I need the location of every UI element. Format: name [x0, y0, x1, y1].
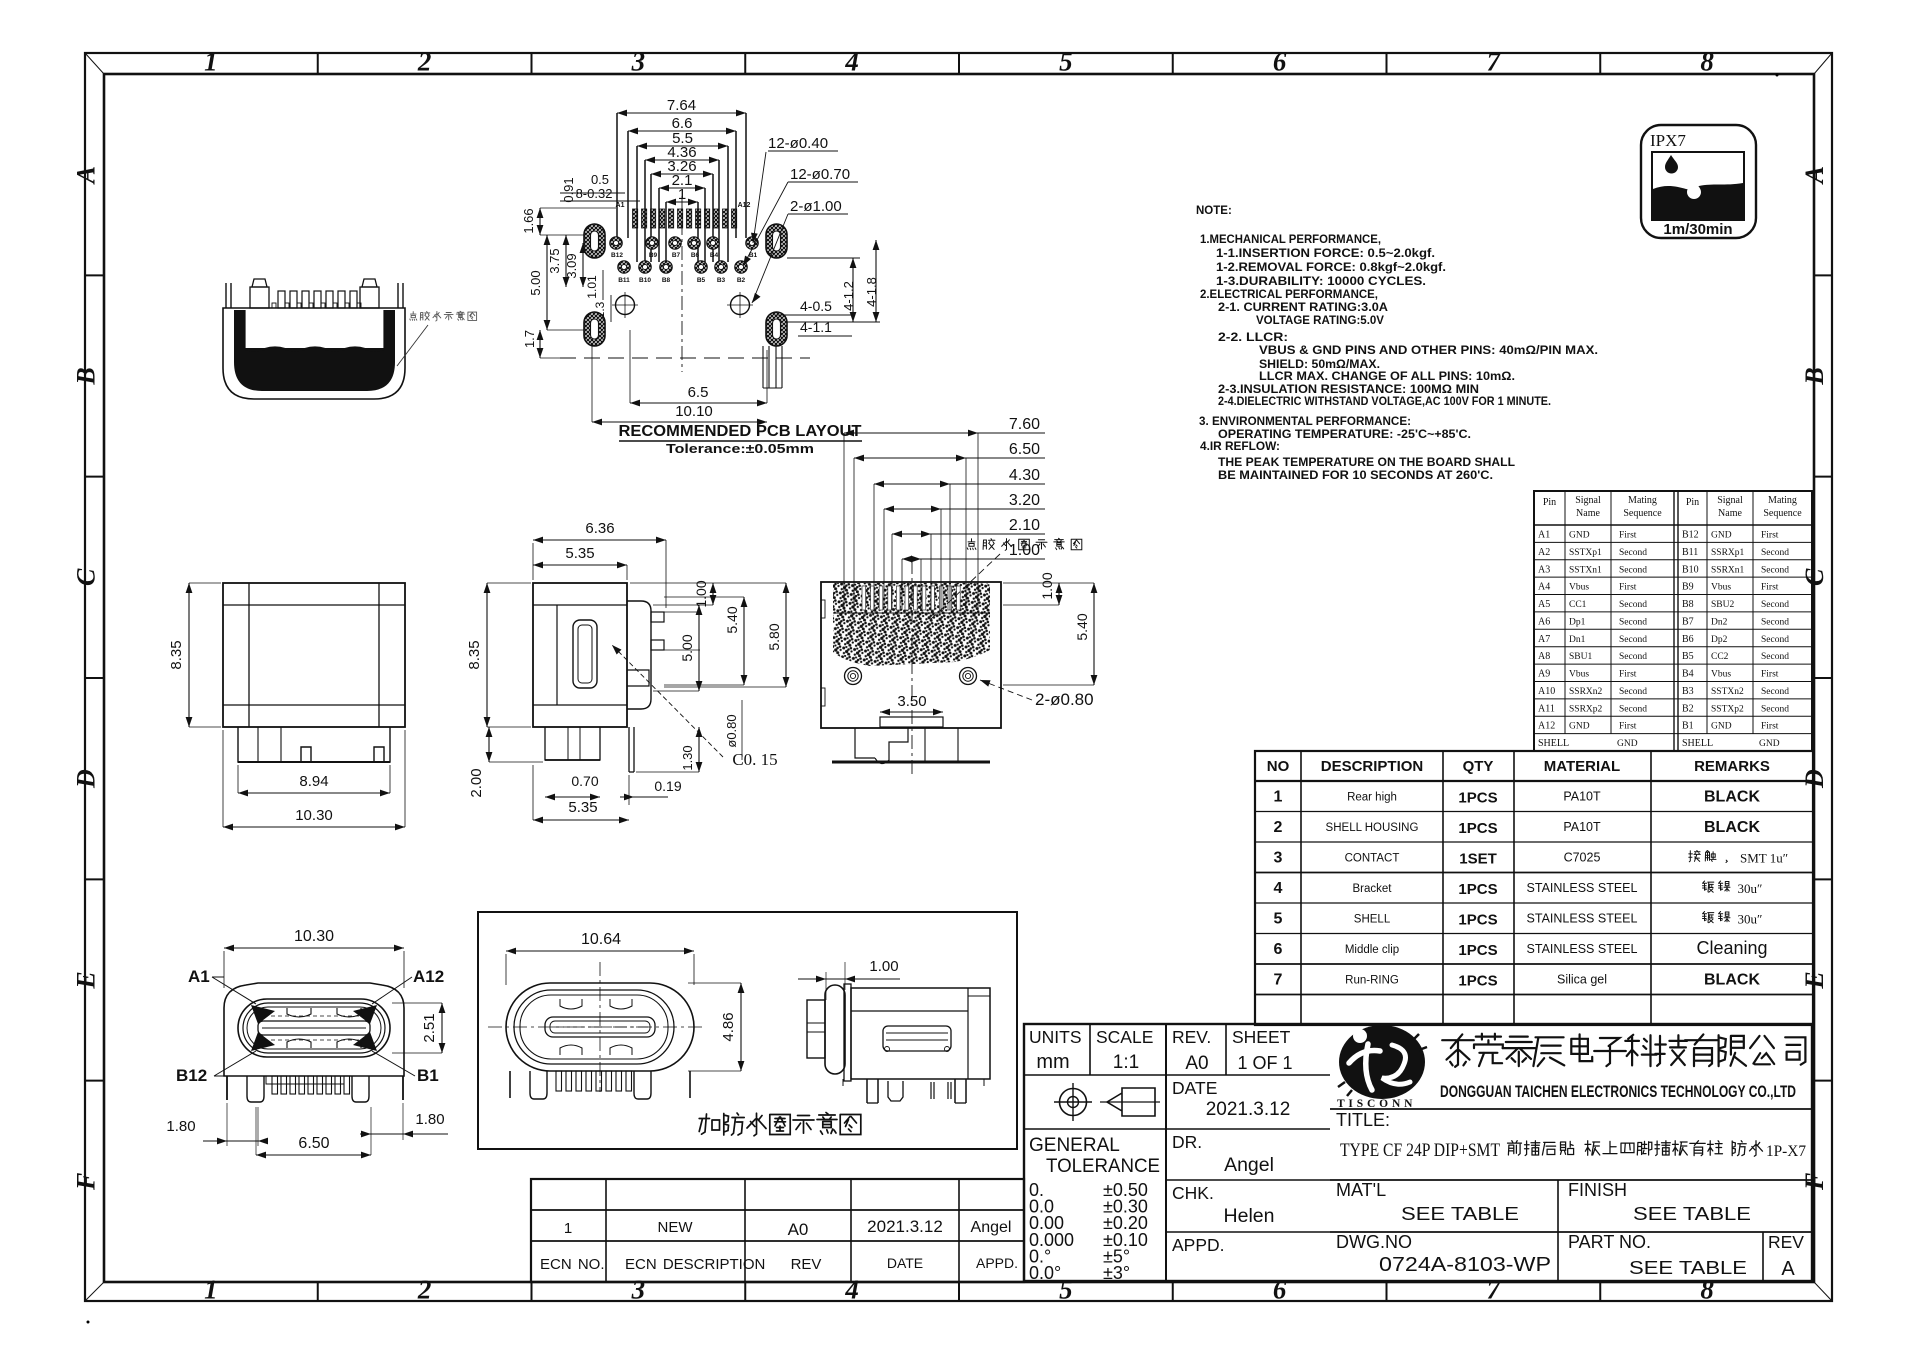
svg-text:2.51: 2.51	[421, 1013, 438, 1042]
svg-text:SHIELD: 50mΩ/MAX.: SHIELD: 50mΩ/MAX.	[1259, 359, 1380, 371]
svg-text:5: 5	[1274, 910, 1283, 927]
svg-text:OPERATING TEMPERATURE: -25'C~+: OPERATING TEMPERATURE: -25'C~+85'C.	[1218, 429, 1471, 441]
svg-text:DATE: DATE	[887, 1255, 923, 1271]
svg-text:B11: B11	[1682, 547, 1698, 558]
svg-text:5.40: 5.40	[1074, 613, 1090, 640]
svg-text:A8: A8	[1538, 651, 1550, 662]
svg-text:1 OF 1: 1 OF 1	[1237, 1053, 1292, 1073]
svg-text:2: 2	[1274, 819, 1283, 836]
svg-text:8.35: 8.35	[466, 640, 483, 669]
svg-text:SCALE: SCALE	[1096, 1027, 1153, 1047]
svg-text:7: 7	[1487, 47, 1502, 77]
svg-text:5.00: 5.00	[679, 634, 695, 661]
svg-text:REMARKS: REMARKS	[1694, 758, 1770, 775]
svg-text:STAINLESS STEEL: STAINLESS STEEL	[1527, 911, 1638, 925]
svg-text:6.50: 6.50	[1009, 441, 1040, 458]
svg-text:1.00: 1.00	[1009, 542, 1040, 559]
svg-text:1SET: 1SET	[1459, 850, 1497, 867]
svg-text:1.80: 1.80	[415, 1111, 444, 1128]
svg-text:B7: B7	[1682, 616, 1694, 627]
svg-text:Second: Second	[1619, 635, 1647, 645]
svg-text:NEW: NEW	[658, 1219, 694, 1236]
svg-text:0.70: 0.70	[571, 773, 598, 789]
svg-text:First: First	[1619, 670, 1637, 680]
svg-text:GENERAL: GENERAL	[1029, 1135, 1120, 1156]
svg-text:CONTACT: CONTACT	[1345, 852, 1400, 864]
svg-text:C7025: C7025	[1564, 850, 1601, 864]
svg-text:Rear high: Rear high	[1347, 791, 1397, 803]
svg-text:6.5: 6.5	[688, 384, 709, 401]
svg-text:6.36: 6.36	[585, 520, 614, 537]
svg-text:BLACK: BLACK	[1704, 788, 1760, 805]
svg-text:1PCS: 1PCS	[1458, 972, 1497, 989]
svg-text:5.35: 5.35	[565, 545, 594, 562]
svg-text:Second: Second	[1761, 687, 1789, 697]
svg-text:MAT'L: MAT'L	[1336, 1180, 1386, 1200]
svg-text:Vbus: Vbus	[1569, 583, 1589, 593]
svg-text:A5: A5	[1538, 599, 1550, 610]
svg-text:VOLTAGE RATING:5.0V: VOLTAGE RATING:5.0V	[1256, 315, 1384, 327]
svg-text:B9: B9	[649, 252, 658, 259]
svg-text:0.0°: 0.0°	[1029, 1263, 1061, 1283]
svg-text:TITLE:: TITLE:	[1336, 1110, 1390, 1130]
svg-text:B6: B6	[691, 252, 700, 259]
svg-text:Sequence: Sequence	[1623, 508, 1662, 519]
svg-text:2-3.INSULATION RESISTANCE: 100: 2-3.INSULATION RESISTANCE: 100MΩ MIN	[1218, 384, 1479, 396]
svg-text:6: 6	[1273, 47, 1287, 77]
svg-text:5.35: 5.35	[568, 799, 597, 816]
svg-text:Angel: Angel	[971, 1219, 1012, 1236]
svg-text:2: 2	[417, 47, 432, 77]
svg-text:4-1.8: 4-1.8	[864, 277, 879, 307]
svg-text:Name: Name	[1718, 508, 1742, 519]
svg-text:First: First	[1761, 531, 1779, 541]
svg-text:Dp2: Dp2	[1711, 635, 1728, 645]
svg-text:GND: GND	[1569, 531, 1590, 541]
svg-text:SHELL HOUSING: SHELL HOUSING	[1326, 822, 1419, 834]
svg-text:Angel: Angel	[1224, 1154, 1274, 1176]
svg-text:4: 4	[844, 47, 859, 77]
svg-text:BLACK: BLACK	[1704, 971, 1760, 988]
svg-text:A: A	[1781, 1258, 1795, 1280]
svg-text:First: First	[1761, 722, 1779, 732]
svg-text:10.10: 10.10	[675, 403, 713, 420]
svg-text:1: 1	[564, 1220, 572, 1237]
svg-text:1-2.REMOVAL FORCE: 0.8kgf~2.0k: 1-2.REMOVAL FORCE: 0.8kgf~2.0kgf.	[1216, 262, 1446, 274]
svg-text:5.40: 5.40	[724, 606, 740, 633]
svg-text:A4: A4	[1538, 582, 1550, 593]
svg-text:Second: Second	[1619, 617, 1647, 627]
svg-text:B7: B7	[672, 252, 681, 259]
svg-text:2-4.DIELECTRIC WITHSTAND VOLTA: 2-4.DIELECTRIC WITHSTAND VOLTAGE,AC 100V…	[1218, 396, 1551, 408]
svg-text:GND: GND	[1569, 722, 1590, 732]
svg-text:mm: mm	[1036, 1051, 1069, 1073]
svg-text:1PCS: 1PCS	[1458, 911, 1497, 928]
svg-text:Dn2: Dn2	[1711, 617, 1728, 627]
svg-text:2021.3.12: 2021.3.12	[867, 1217, 943, 1236]
svg-text:2.00: 2.00	[468, 768, 485, 797]
svg-text:REV.: REV.	[1172, 1027, 1211, 1047]
svg-text:7: 7	[1274, 971, 1283, 988]
svg-text:NOTE:: NOTE:	[1196, 205, 1232, 217]
svg-text:Tolerance:±0.05mm: Tolerance:±0.05mm	[666, 442, 814, 456]
svg-text:A1: A1	[1538, 530, 1550, 541]
svg-text:Second: Second	[1619, 565, 1647, 575]
svg-text:6: 6	[1273, 1275, 1287, 1305]
svg-text:1.00: 1.00	[1039, 572, 1055, 599]
svg-text:SSTXp1: SSTXp1	[1569, 548, 1602, 558]
svg-text:SSRXp1: SSRXp1	[1711, 548, 1745, 558]
svg-text:REV: REV	[791, 1256, 822, 1273]
svg-text:1PCS: 1PCS	[1458, 881, 1497, 898]
svg-text:A12: A12	[1538, 721, 1555, 732]
svg-text:A: A	[1800, 166, 1829, 185]
svg-text:12-ø0.40: 12-ø0.40	[768, 135, 828, 152]
svg-text:4: 4	[1274, 880, 1283, 897]
svg-text:Pin: Pin	[1686, 497, 1699, 508]
svg-text:DATE: DATE	[1172, 1078, 1217, 1098]
svg-text:CHK.: CHK.	[1172, 1183, 1214, 1203]
svg-text:Second: Second	[1761, 600, 1789, 610]
svg-text:B: B	[1800, 367, 1829, 385]
svg-text:SEE TABLE: SEE TABLE	[1401, 1203, 1519, 1224]
svg-text:CC1: CC1	[1569, 600, 1587, 610]
svg-text:Pin: Pin	[1543, 497, 1556, 508]
svg-text:2.10: 2.10	[1009, 517, 1040, 534]
svg-text:B11: B11	[618, 277, 630, 284]
svg-text:0.19: 0.19	[654, 778, 681, 794]
svg-text:SSTXn2: SSTXn2	[1711, 687, 1744, 697]
svg-text:A6: A6	[1538, 616, 1550, 627]
svg-text:A: A	[72, 166, 101, 185]
svg-text:SSRXn2: SSRXn2	[1569, 687, 1603, 697]
svg-text:1P-X7: 1P-X7	[1766, 1143, 1806, 1160]
svg-text:8: 8	[1700, 1275, 1714, 1305]
svg-text:Sequence: Sequence	[1763, 508, 1802, 519]
svg-text:Second: Second	[1619, 704, 1647, 714]
svg-text:NO: NO	[1267, 758, 1290, 775]
svg-text:THE PEAK TEMPERATURE ON THE BO: THE PEAK TEMPERATURE ON THE BOARD SHALL	[1218, 457, 1515, 469]
svg-text:A12: A12	[738, 202, 751, 209]
svg-text:±3°: ±3°	[1103, 1263, 1130, 1283]
svg-text:SBU2: SBU2	[1711, 600, 1734, 610]
svg-text:Helen: Helen	[1224, 1205, 1275, 1227]
svg-text:RECOMMENDED PCB LAYOUT: RECOMMENDED PCB LAYOUT	[619, 423, 863, 440]
svg-text:A12: A12	[413, 967, 444, 986]
svg-text:A0: A0	[1185, 1053, 1208, 1074]
svg-text:B10: B10	[639, 277, 651, 284]
svg-text:B12: B12	[176, 1066, 207, 1085]
svg-text:PA10T: PA10T	[1563, 789, 1601, 803]
svg-text:BE MAINTAINED FOR 10 SECONDS A: BE MAINTAINED FOR 10 SECONDS AT 260'C.	[1218, 470, 1493, 482]
svg-text:B12: B12	[1682, 530, 1699, 541]
svg-text:SSRXn1: SSRXn1	[1711, 565, 1745, 575]
svg-text:8-0.32: 8-0.32	[576, 186, 613, 201]
svg-text:REV: REV	[1768, 1232, 1804, 1252]
svg-text:Second: Second	[1761, 704, 1789, 714]
svg-text:4-1.2: 4-1.2	[841, 281, 856, 311]
svg-text:1m/30min: 1m/30min	[1663, 221, 1732, 238]
svg-text:8.35: 8.35	[168, 640, 185, 669]
svg-text:Second: Second	[1619, 548, 1647, 558]
svg-text:Mating: Mating	[1768, 495, 1797, 506]
svg-text:5.00: 5.00	[528, 270, 543, 295]
svg-text:3.09: 3.09	[564, 253, 579, 278]
svg-text:IPX7: IPX7	[1650, 131, 1686, 150]
svg-text:GND: GND	[1711, 531, 1732, 541]
svg-text:Second: Second	[1761, 635, 1789, 645]
svg-text:PA10T: PA10T	[1563, 820, 1601, 834]
svg-text:T I S C O N N: T I S C O N N	[1337, 1098, 1413, 1110]
svg-text:FINISH: FINISH	[1568, 1180, 1627, 1200]
svg-text:4-0.5: 4-0.5	[800, 298, 832, 314]
svg-text:Vbus: Vbus	[1569, 670, 1589, 680]
svg-text:1: 1	[204, 1275, 218, 1305]
svg-text:B: B	[72, 367, 101, 385]
svg-text:1.MECHANICAL PERFORMANCE,: 1.MECHANICAL PERFORMANCE,	[1200, 234, 1381, 246]
svg-text:Mating: Mating	[1628, 495, 1657, 506]
svg-text:2-ø1.00: 2-ø1.00	[790, 198, 842, 215]
svg-text:8.94: 8.94	[299, 773, 328, 790]
svg-text:10.64: 10.64	[581, 931, 621, 948]
svg-text:DONGGUAN TAICHEN ELECTRONICS T: DONGGUAN TAICHEN ELECTRONICS TECHNOLOGY …	[1440, 1083, 1796, 1101]
svg-text:1.30: 1.30	[680, 745, 695, 770]
svg-text:1:1: 1:1	[1113, 1052, 1139, 1073]
svg-text:0724A-8103-WP: 0724A-8103-WP	[1379, 1254, 1551, 1276]
svg-text:2: 2	[417, 1275, 432, 1305]
svg-text:SBU1: SBU1	[1569, 652, 1592, 662]
svg-text:5: 5	[1059, 47, 1073, 77]
svg-text:GND: GND	[1711, 722, 1732, 732]
svg-text:STAINLESS STEEL: STAINLESS STEEL	[1527, 881, 1638, 895]
svg-text:B3: B3	[1682, 686, 1694, 697]
svg-text:1-3.DURABILITY: 10000 CYCLES.: 1-3.DURABILITY: 10000 CYCLES.	[1216, 276, 1426, 288]
svg-text:1.7: 1.7	[522, 330, 537, 348]
svg-text:Second: Second	[1761, 652, 1789, 662]
svg-text:B3: B3	[717, 277, 726, 284]
svg-text:A10: A10	[1538, 686, 1555, 697]
svg-text:SEE TABLE: SEE TABLE	[1633, 1203, 1751, 1224]
svg-text:STAINLESS STEEL: STAINLESS STEEL	[1527, 942, 1638, 956]
svg-text:First: First	[1761, 583, 1779, 593]
svg-text:Cleaning: Cleaning	[1696, 938, 1767, 958]
svg-text:A1: A1	[188, 967, 210, 986]
svg-text:1: 1	[1274, 788, 1283, 805]
svg-text:PART NO.: PART NO.	[1568, 1232, 1651, 1252]
svg-text:A0: A0	[788, 1220, 809, 1239]
svg-text:SHEET: SHEET	[1232, 1027, 1291, 1047]
svg-text:LLCR MAX. CHANGE OF ALL PINS:: LLCR MAX. CHANGE OF ALL PINS: 10mΩ.	[1259, 371, 1515, 383]
svg-text:30u″: 30u″	[1738, 911, 1763, 926]
svg-text:First: First	[1619, 531, 1637, 541]
svg-text:Vbus: Vbus	[1711, 670, 1731, 680]
svg-text:A2: A2	[1538, 547, 1550, 558]
svg-text:APPD.: APPD.	[1172, 1235, 1225, 1255]
svg-text:GND: GND	[1617, 739, 1638, 749]
svg-text:B8: B8	[1682, 599, 1694, 610]
svg-text:GND: GND	[1759, 739, 1780, 749]
svg-text:1PCS: 1PCS	[1458, 942, 1497, 959]
svg-text:Second: Second	[1619, 652, 1647, 662]
svg-text:2-2. LLCR:: 2-2. LLCR:	[1218, 332, 1288, 344]
svg-text:DESCRIPTION: DESCRIPTION	[1321, 758, 1424, 775]
svg-text:B1: B1	[1682, 721, 1694, 732]
svg-text:DWG.NO: DWG.NO	[1336, 1232, 1412, 1252]
svg-text:B1: B1	[417, 1066, 439, 1085]
svg-text:B2: B2	[1682, 703, 1694, 714]
svg-text:Name: Name	[1576, 508, 1600, 519]
svg-text:Run-RING: Run-RING	[1345, 974, 1399, 986]
svg-text:SSTXn1: SSTXn1	[1569, 565, 1602, 575]
svg-text:VBUS & GND PINS AND OTHER PINS: VBUS & GND PINS AND OTHER PINS: 40mΩ/PIN…	[1259, 345, 1598, 357]
svg-text:SHELL: SHELL	[1682, 738, 1713, 749]
svg-text:First: First	[1619, 722, 1637, 732]
svg-text:1.66: 1.66	[521, 208, 536, 233]
svg-text:2021.3.12: 2021.3.12	[1206, 1099, 1291, 1120]
svg-text:2.ELECTRICAL PERFORMANCE,: 2.ELECTRICAL PERFORMANCE,	[1200, 289, 1378, 301]
svg-text:1PCS: 1PCS	[1458, 820, 1497, 837]
svg-text:1PCS: 1PCS	[1458, 789, 1497, 806]
svg-text:B12: B12	[611, 252, 623, 259]
svg-text:Second: Second	[1761, 548, 1789, 558]
svg-text:D: D	[1800, 769, 1829, 789]
svg-text:2-1. CURRENT RATING:3.0A: 2-1. CURRENT RATING:3.0A	[1218, 302, 1388, 314]
svg-text:First: First	[1619, 583, 1637, 593]
svg-text:MATERIAL: MATERIAL	[1544, 758, 1620, 775]
svg-text:A11: A11	[1538, 703, 1555, 714]
svg-text:4.30: 4.30	[1009, 467, 1040, 484]
svg-text:Dp1: Dp1	[1569, 617, 1586, 627]
svg-text:TYPE CF 24P DIP+SMT: TYPE CF 24P DIP+SMT	[1340, 1141, 1500, 1161]
svg-text:3: 3	[631, 47, 646, 77]
svg-text:SHELL: SHELL	[1538, 738, 1569, 749]
svg-text:A7: A7	[1538, 634, 1550, 645]
svg-text:BLACK: BLACK	[1704, 819, 1760, 836]
svg-text:C0. 15: C0. 15	[732, 750, 777, 769]
svg-text:Silica gel: Silica gel	[1557, 972, 1607, 986]
svg-text:7: 7	[1487, 1275, 1502, 1305]
svg-text:3. ENVIRONMENTAL PERFORMANCE:: 3. ENVIRONMENTAL PERFORMANCE:	[1199, 416, 1411, 428]
svg-text:ECN DESCRIPTION: ECN DESCRIPTION	[625, 1256, 765, 1273]
svg-text:Second: Second	[1761, 565, 1789, 575]
svg-text:3: 3	[631, 1275, 646, 1305]
svg-text:1.00: 1.00	[693, 580, 709, 607]
svg-text:D: D	[72, 769, 101, 789]
svg-text:First: First	[1761, 670, 1779, 680]
svg-text:Second: Second	[1619, 600, 1647, 610]
svg-text:1.80: 1.80	[166, 1118, 195, 1135]
svg-text:1-1.INSERTION FORCE: 0.5~2.0kg: 1-1.INSERTION FORCE: 0.5~2.0kgf.	[1216, 248, 1435, 260]
svg-text:B4: B4	[1682, 669, 1694, 680]
svg-text:B10: B10	[1682, 564, 1699, 575]
svg-text:1.01: 1.01	[585, 275, 599, 299]
svg-text:3.20: 3.20	[1009, 492, 1040, 509]
svg-text:SMT 1u″: SMT 1u″	[1740, 850, 1788, 865]
svg-text:3.75: 3.75	[547, 248, 562, 273]
svg-text:F: F	[1800, 1173, 1829, 1191]
svg-text:B8: B8	[662, 277, 671, 284]
svg-text:Second: Second	[1619, 687, 1647, 697]
svg-text:Signal: Signal	[1717, 495, 1743, 506]
svg-text:2-ø0.80: 2-ø0.80	[1035, 690, 1094, 709]
svg-text:Vbus: Vbus	[1711, 583, 1731, 593]
svg-text:Middle clip: Middle clip	[1345, 944, 1399, 956]
svg-text:10.30: 10.30	[295, 807, 333, 824]
svg-text:UNITS: UNITS	[1029, 1027, 1082, 1047]
svg-text:B9: B9	[1682, 582, 1694, 593]
svg-text:SSTXp2: SSTXp2	[1711, 704, 1744, 714]
svg-text:B5: B5	[697, 277, 706, 284]
svg-text:A9: A9	[1538, 669, 1550, 680]
svg-text:3: 3	[1274, 849, 1283, 866]
svg-text:APPD.: APPD.	[976, 1255, 1018, 1271]
svg-text:B4: B4	[710, 252, 719, 259]
svg-text:4-1.1: 4-1.1	[800, 319, 832, 335]
svg-text:F: F	[72, 1173, 101, 1191]
svg-text:A3: A3	[1538, 564, 1550, 575]
svg-text:4.IR REFLOW:: 4.IR REFLOW:	[1200, 441, 1280, 453]
svg-text:1: 1	[204, 47, 218, 77]
svg-text:E: E	[1800, 971, 1829, 989]
svg-text:8: 8	[1700, 47, 1714, 77]
svg-text:C: C	[72, 568, 101, 586]
svg-text:CC2: CC2	[1711, 652, 1729, 662]
svg-text:B2: B2	[737, 277, 746, 284]
svg-text:Dn1: Dn1	[1569, 635, 1586, 645]
svg-text:QTY: QTY	[1463, 758, 1494, 775]
svg-text:B5: B5	[1682, 651, 1694, 662]
svg-text:Second: Second	[1761, 617, 1789, 627]
svg-text:7.64: 7.64	[667, 97, 696, 114]
svg-text:5.80: 5.80	[766, 623, 782, 650]
svg-text:0.91: 0.91	[561, 177, 576, 202]
svg-text:1.00: 1.00	[869, 958, 898, 975]
svg-text:ø0.80: ø0.80	[724, 714, 739, 747]
svg-text:SHELL: SHELL	[1354, 913, 1391, 925]
svg-text:SEE TABLE: SEE TABLE	[1629, 1257, 1747, 1278]
svg-text:DR.: DR.	[1172, 1132, 1202, 1152]
svg-text:6.50: 6.50	[298, 1135, 329, 1152]
svg-text:E: E	[72, 971, 101, 989]
svg-text:Signal: Signal	[1575, 495, 1601, 506]
svg-text:12-ø0.70: 12-ø0.70	[790, 166, 850, 183]
svg-text:TOLERANCE: TOLERANCE	[1046, 1156, 1160, 1177]
svg-text:B6: B6	[1682, 634, 1694, 645]
svg-text:4.86: 4.86	[720, 1012, 737, 1041]
svg-text:ECN NO.: ECN NO.	[540, 1256, 605, 1273]
svg-text:10.30: 10.30	[294, 928, 334, 945]
svg-text:30u″: 30u″	[1738, 881, 1763, 896]
svg-text:7.60: 7.60	[1009, 416, 1040, 433]
svg-text:SSRXp2: SSRXp2	[1569, 704, 1603, 714]
svg-text:0.5: 0.5	[591, 172, 609, 187]
svg-text:Bracket: Bracket	[1353, 883, 1393, 895]
svg-text:6: 6	[1274, 941, 1283, 958]
